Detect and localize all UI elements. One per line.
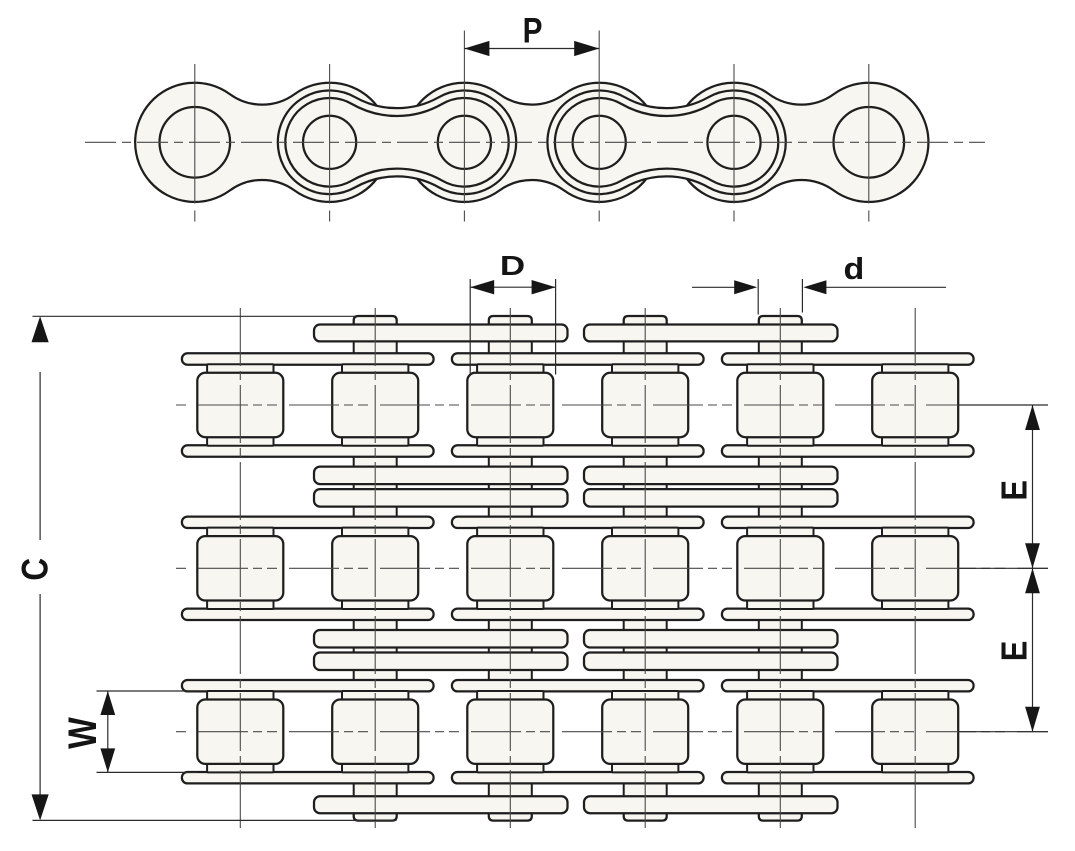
svg-text:d: d <box>843 251 864 285</box>
svg-text:E: E <box>995 480 1035 500</box>
svg-text:C: C <box>15 558 56 581</box>
svg-text:E: E <box>995 641 1035 661</box>
svg-text:D: D <box>500 249 525 281</box>
svg-text:P: P <box>523 11 543 50</box>
svg-text:W: W <box>61 717 105 749</box>
